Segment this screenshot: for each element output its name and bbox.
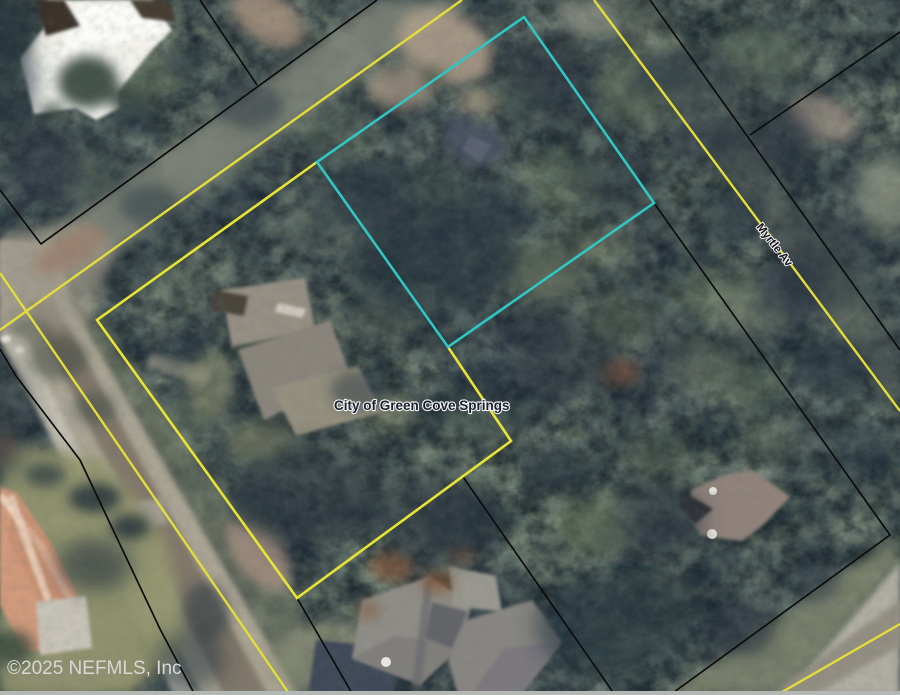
svg-text:City of Green Cove Springs: City of Green Cove Springs xyxy=(334,398,510,413)
svg-text:©2025 NEFMLS, Inc: ©2025 NEFMLS, Inc xyxy=(7,658,182,679)
